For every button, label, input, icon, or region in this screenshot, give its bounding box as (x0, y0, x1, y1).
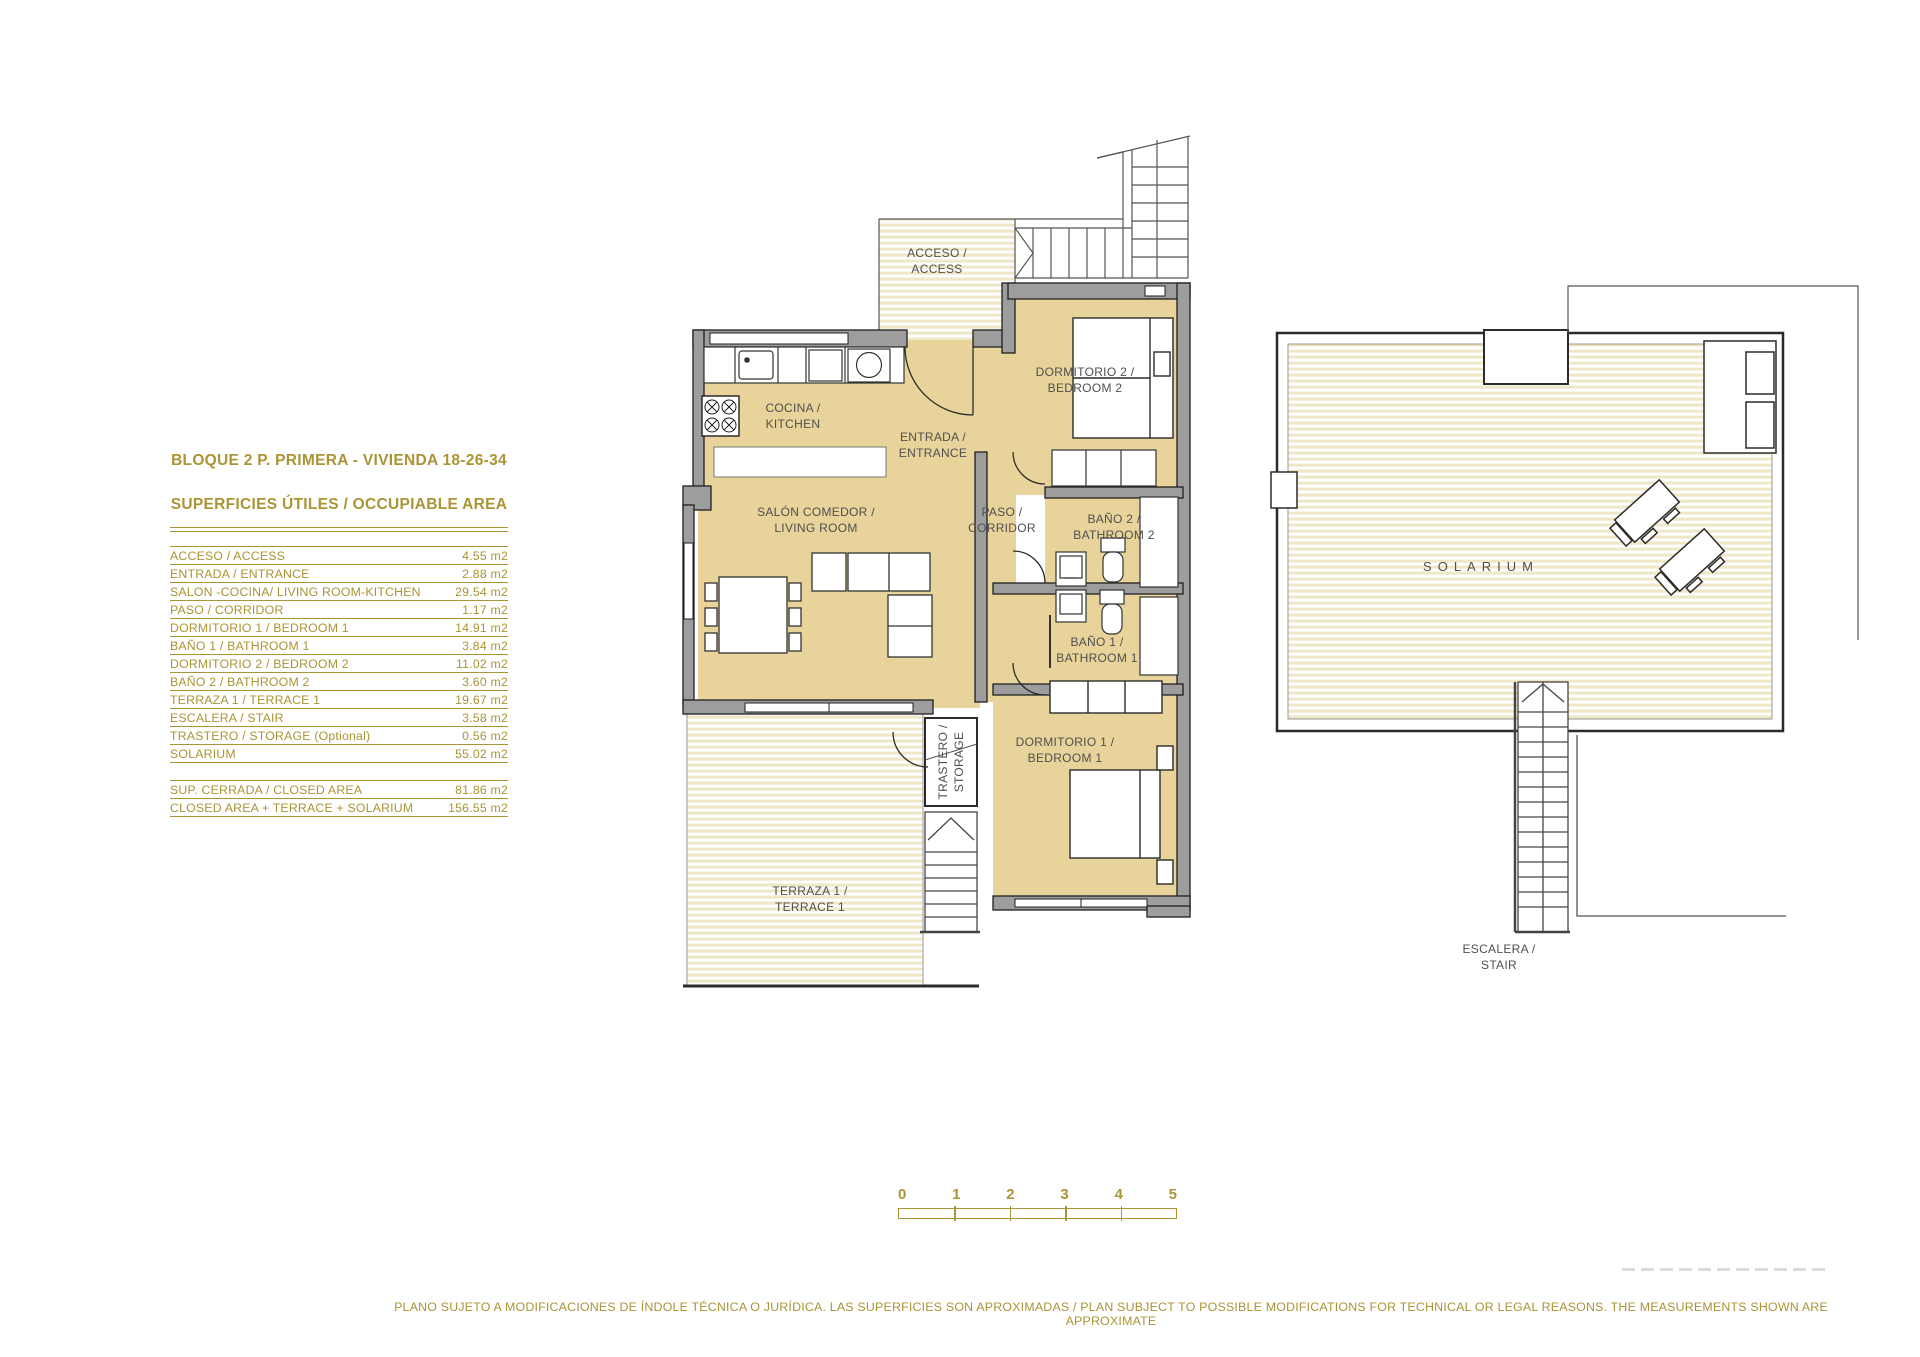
scale-numbers: 012345 (898, 1186, 1177, 1203)
floorplan-page: ACCESO / ACCESS COCINA / KITCHEN ENTRADA… (0, 0, 1920, 1357)
area-summary-rows: SUP. CERRADA / CLOSED AREA 81.86 m2 CLOS… (170, 780, 508, 817)
washer-drum-icon (857, 353, 882, 378)
area-row-label: ESCALERA / STAIR (170, 711, 284, 725)
shower1-icon (1140, 597, 1178, 675)
room-label-bathroom1: BAÑO 1 / BATHROOM 1 (1056, 634, 1137, 666)
area-row: BAÑO 1 / BATHROOM 1 3.84 m2 (170, 637, 508, 655)
terrace-stair (920, 812, 980, 932)
area-row-label: DORMITORIO 2 / BEDROOM 2 (170, 657, 349, 671)
scale-tick-label: 3 (1060, 1186, 1068, 1203)
area-row-label: TERRAZA 1 / TERRACE 1 (170, 693, 320, 707)
area-row-value: 11.02 m2 (456, 657, 508, 671)
scale-ruler (898, 1208, 1177, 1219)
area-row: BAÑO 2 / BATHROOM 2 3.60 m2 (170, 673, 508, 691)
scale-tick-label: 0 (898, 1186, 906, 1203)
area-row-label: ACCESO / ACCESS (170, 549, 285, 563)
area-row: SOLARIUM 55.02 m2 (170, 745, 508, 763)
area-row: PASO / CORRIDOR 1.17 m2 (170, 601, 508, 619)
area-row-label: ENTRADA / ENTRANCE (170, 567, 310, 581)
sink-icon (739, 351, 773, 379)
area-row: ENTRADA / ENTRANCE 2.88 m2 (170, 565, 508, 583)
area-row-label: BAÑO 1 / BATHROOM 1 (170, 639, 310, 653)
area-row-value: 4.55 m2 (462, 549, 508, 563)
area-rows: ACCESO / ACCESS 4.55 m2 ENTRADA / ENTRAN… (170, 546, 508, 763)
summary-row-value: 81.86 m2 (455, 783, 508, 797)
closet1-icon (1050, 681, 1162, 713)
room-label-entrance: ENTRADA / ENTRANCE (899, 429, 967, 461)
solarium-notch (1484, 330, 1568, 384)
stove-icon (702, 396, 739, 436)
area-row: TERRAZA 1 / TERRACE 1 19.67 m2 (170, 691, 508, 709)
room-label-living-room: SALÓN COMEDOR / LIVING ROOM (757, 504, 875, 536)
scale-tick-label: 1 (952, 1186, 960, 1203)
area-row-value: 1.17 m2 (462, 603, 508, 617)
plan-title: BLOQUE 2 P. PRIMERA - VIVIENDA 18-26-34 … (170, 428, 508, 516)
area-row-label: TRASTERO / STORAGE (Optional) (170, 729, 370, 743)
area-row-label: DORMITORIO 1 / BEDROOM 1 (170, 621, 349, 635)
summary-row-label: SUP. CERRADA / CLOSED AREA (170, 783, 362, 797)
area-row-value: 3.58 m2 (462, 711, 508, 725)
area-row-value: 55.02 m2 (455, 747, 508, 761)
oven-icon (809, 350, 842, 381)
area-table-panel: BLOQUE 2 P. PRIMERA - VIVIENDA 18-26-34 … (170, 428, 508, 817)
area-row: ESCALERA / STAIR 3.58 m2 (170, 709, 508, 727)
summary-row-value: 156.55 m2 (448, 801, 508, 815)
area-row-value: 3.84 m2 (462, 639, 508, 653)
toilet1-icon (1102, 604, 1122, 634)
area-row-value: 2.88 m2 (462, 567, 508, 581)
room-label-corridor: PASO / CORRIDOR (968, 504, 1036, 536)
dining-table-icon (705, 577, 801, 653)
toilet2-icon (1103, 552, 1123, 582)
area-row-label: SALON -COCINA/ LIVING ROOM-KITCHEN (170, 585, 421, 599)
title-divider (170, 527, 508, 532)
summary-row: SUP. CERRADA / CLOSED AREA 81.86 m2 (170, 781, 508, 799)
faint-watermark (1622, 1268, 1827, 1271)
area-row-value: 29.54 m2 (455, 585, 508, 599)
area-row: DORMITORIO 1 / BEDROOM 1 14.91 m2 (170, 619, 508, 637)
scale-tick-label: 5 (1169, 1186, 1177, 1203)
scale-tick-label: 2 (1006, 1186, 1014, 1203)
solarium-plan (1271, 286, 1858, 731)
area-row: ACCESO / ACCESS 4.55 m2 (170, 547, 508, 565)
closet2-icon (1052, 450, 1156, 486)
disclaimer-text: PLANO SUJETO A MODIFICACIONES DE ÍNDOLE … (368, 1300, 1854, 1328)
area-row: DORMITORIO 2 / BEDROOM 2 11.02 m2 (170, 655, 508, 673)
room-label-kitchen: COCINA / KITCHEN (765, 400, 820, 432)
room-label-bedroom1: DORMITORIO 1 / BEDROOM 1 (1016, 734, 1115, 766)
upper-exterior-stair (1015, 136, 1190, 283)
area-row-value: 14.91 m2 (455, 621, 508, 635)
room-label-bathroom2: BAÑO 2 / BATHROOM 2 (1073, 511, 1154, 543)
plan-title-line1: BLOQUE 2 P. PRIMERA - VIVIENDA 18-26-34 (171, 452, 507, 469)
area-row-label: BAÑO 2 / BATHROOM 2 (170, 675, 310, 689)
area-row-value: 3.60 m2 (462, 675, 508, 689)
summary-row-label: CLOSED AREA + TERRACE + SOLARIUM (170, 801, 413, 815)
area-row-label: SOLARIUM (170, 747, 236, 761)
scale-bar: 012345 (898, 1186, 1177, 1219)
area-row-value: 0.56 m2 (462, 729, 508, 743)
plan-title-line2: SUPERFICIES ÚTILES / OCCUPIABLE AREA (171, 496, 508, 513)
area-row: SALON -COCINA/ LIVING ROOM-KITCHEN 29.54… (170, 583, 508, 601)
room-label-stair: ESCALERA / STAIR (1462, 941, 1535, 973)
area-row-label: PASO / CORRIDOR (170, 603, 283, 617)
room-label-terrace: TERRAZA 1 / TERRACE 1 (772, 883, 847, 915)
area-row: TRASTERO / STORAGE (Optional) 0.56 m2 (170, 727, 508, 745)
scale-tick-label: 4 (1115, 1186, 1123, 1203)
toilet1-tank-icon (1100, 590, 1124, 604)
summary-row: CLOSED AREA + TERRACE + SOLARIUM 156.55 … (170, 799, 508, 817)
room-label-solarium: SOLARIUM (1423, 559, 1539, 575)
area-row-value: 19.67 m2 (455, 693, 508, 707)
room-label-access: ACCESO / ACCESS (907, 245, 967, 277)
room-label-storage: TRASTERO / STORAGE (935, 724, 967, 799)
room-label-bedroom2: DORMITORIO 2 / BEDROOM 2 (1036, 364, 1135, 396)
